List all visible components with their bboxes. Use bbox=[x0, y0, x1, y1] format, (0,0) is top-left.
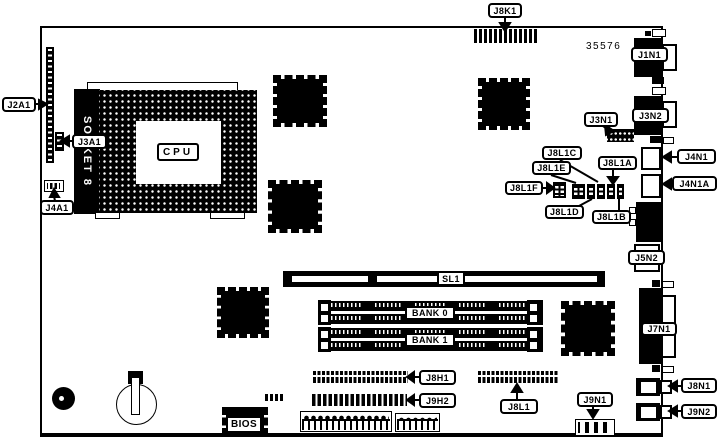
label-j9n2: J9N2 bbox=[681, 404, 717, 419]
label-sl1: SL1 bbox=[437, 271, 465, 286]
label-j8l1b: J8L1B bbox=[592, 210, 631, 224]
label-j7n1: J7N1 bbox=[641, 322, 677, 336]
label-j8n1: J8N1 bbox=[681, 378, 717, 393]
label-bank1: BANK 1 bbox=[405, 333, 455, 347]
cpu-label: CPU bbox=[157, 143, 199, 161]
label-j8l1f: J8L1F bbox=[505, 181, 543, 195]
label-j8h1: J8H1 bbox=[419, 370, 456, 385]
label-j3a1: J3A1 bbox=[72, 134, 107, 149]
label-j3n2: J3N2 bbox=[632, 108, 669, 123]
label-j4n1a: J4N1A bbox=[672, 176, 717, 191]
label-j2a1: J2A1 bbox=[2, 97, 36, 112]
label-j4a1: J4A1 bbox=[40, 200, 74, 215]
motherboard-diagram: SOCKET 8 CPU 35576 bbox=[0, 0, 718, 440]
label-j8l1: J8L1 bbox=[500, 399, 538, 414]
label-j9n1: J9N1 bbox=[577, 392, 613, 407]
label-j8l1c: J8L1C bbox=[542, 146, 582, 160]
label-j8k1: J8K1 bbox=[488, 3, 522, 18]
label-j9h2: J9H2 bbox=[419, 393, 456, 408]
label-j8l1e: J8L1E bbox=[532, 161, 571, 175]
label-bios: BIOS bbox=[227, 417, 261, 432]
label-j4n1: J4N1 bbox=[677, 149, 716, 164]
label-j1n1: J1N1 bbox=[631, 47, 668, 62]
label-j8l1d: J8L1D bbox=[545, 205, 584, 219]
label-j5n2: J5N2 bbox=[628, 250, 665, 265]
label-j8l1a: J8L1A bbox=[598, 156, 637, 170]
label-bank0: BANK 0 bbox=[405, 306, 455, 320]
label-j3n1: J3N1 bbox=[584, 112, 618, 127]
